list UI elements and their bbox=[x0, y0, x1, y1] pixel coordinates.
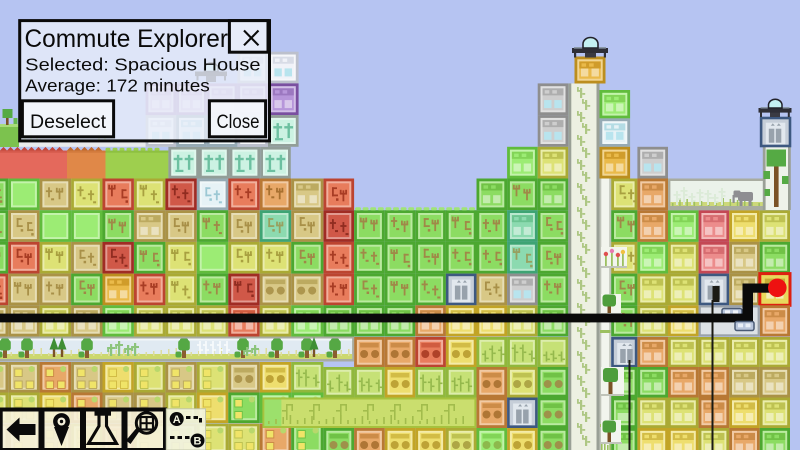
svg-text:Close: Close bbox=[217, 112, 260, 133]
svg-text:Selected: Spacious House: Selected: Spacious House bbox=[25, 54, 260, 74]
svg-text:Commute Explorer: Commute Explorer bbox=[25, 25, 229, 53]
svg-text:A: A bbox=[173, 414, 181, 426]
svg-text:B: B bbox=[194, 436, 202, 448]
svg-text:Deselect: Deselect bbox=[30, 112, 107, 133]
svg-text:Average: 172 minutes: Average: 172 minutes bbox=[25, 76, 210, 96]
